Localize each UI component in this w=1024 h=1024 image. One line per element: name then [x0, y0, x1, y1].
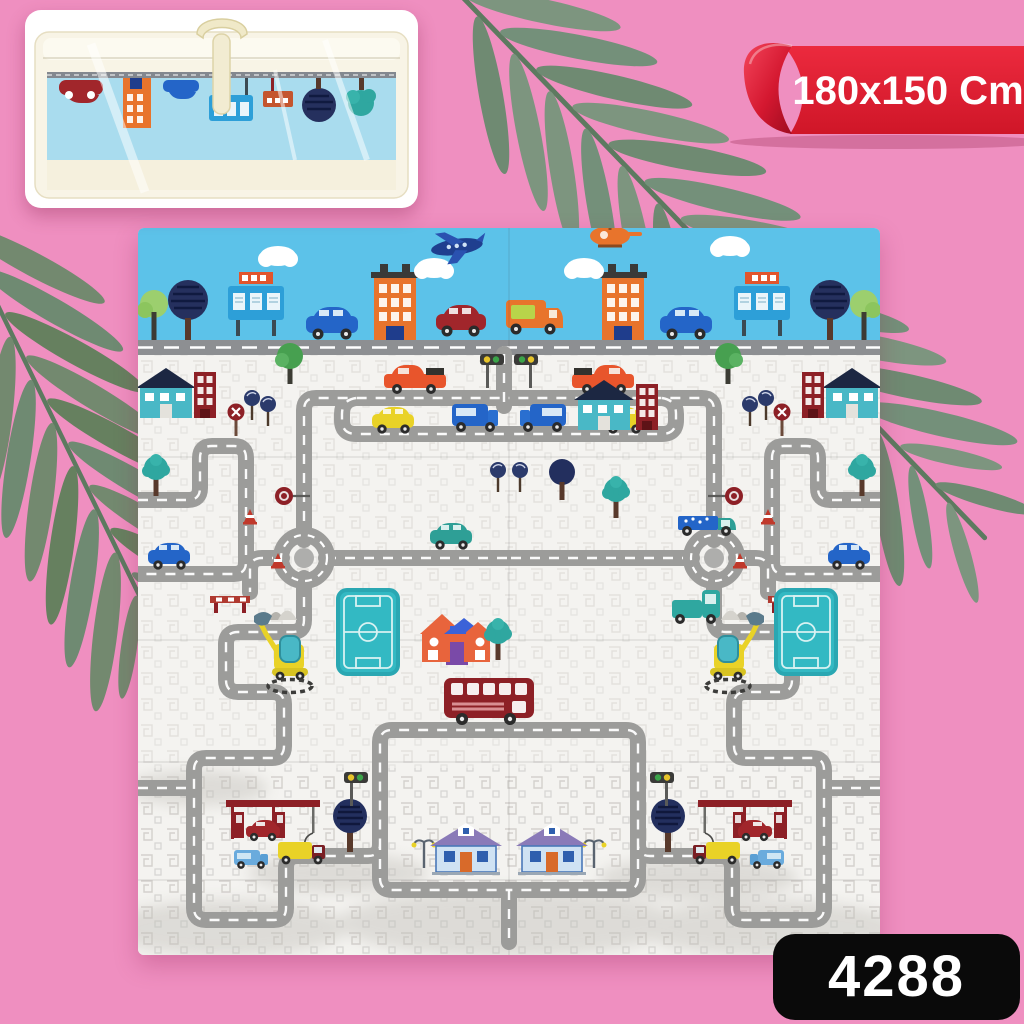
play-mat-graphic	[138, 228, 880, 955]
double-decker-bus	[444, 678, 534, 725]
product-photo: 180x150 Cm 4288	[0, 0, 1024, 1024]
product-code: 4288	[828, 944, 965, 1009]
product-code-badge: 4288	[773, 934, 1020, 1020]
bag-bottom	[47, 160, 396, 190]
soccer-field-right	[776, 590, 836, 674]
size-label: 180x150 Cm	[792, 69, 1023, 113]
orange-building-inverted	[123, 78, 151, 128]
play-mat	[138, 228, 880, 955]
carry-bag-photo	[25, 10, 418, 208]
size-ribbon: 180x150 Cm	[680, 30, 1024, 152]
soccer-field-left	[338, 590, 398, 674]
ribbon-curl	[744, 43, 792, 134]
roundabout-left	[281, 535, 327, 581]
roundabout-right	[691, 535, 737, 581]
packaged-mat-inset	[25, 10, 418, 208]
brick-building-centre	[636, 384, 658, 430]
